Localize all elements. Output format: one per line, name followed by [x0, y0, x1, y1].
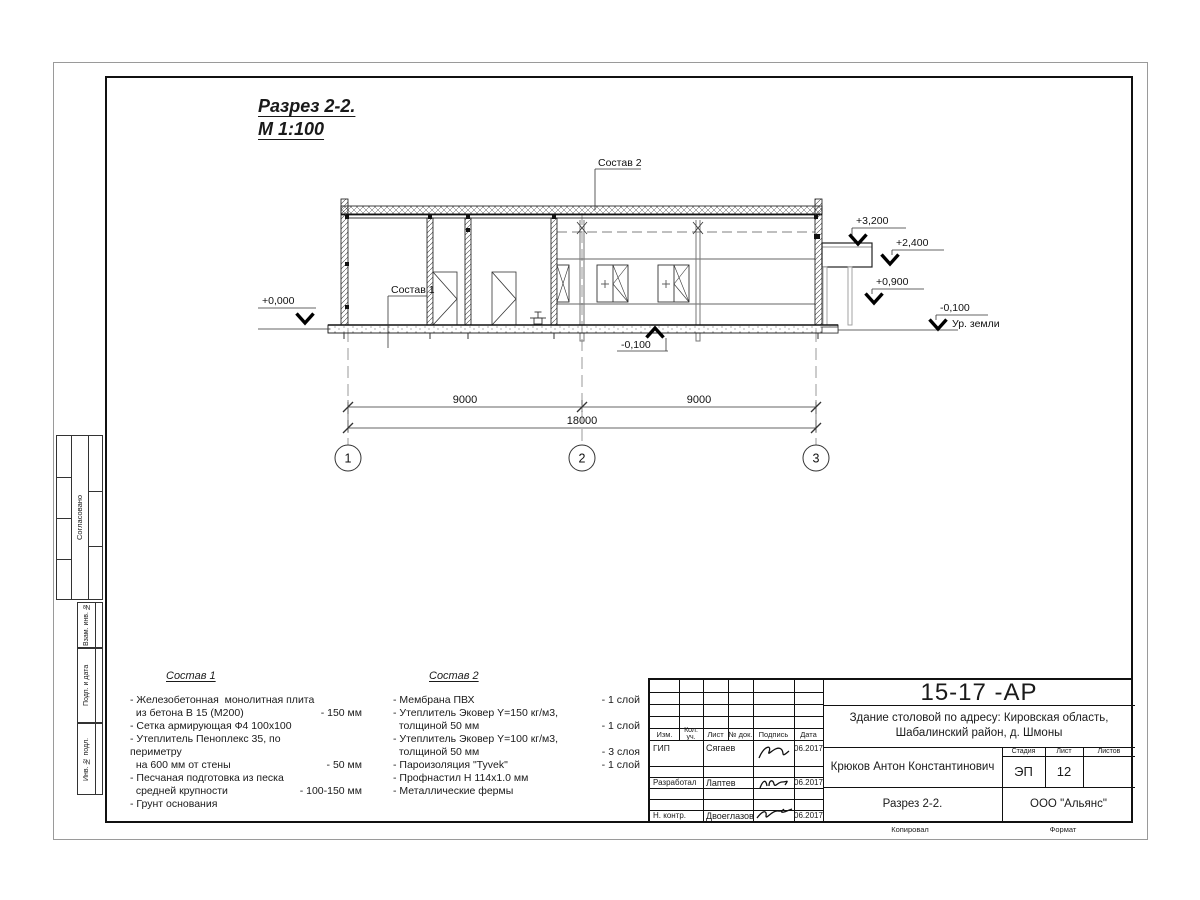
footer-format: Формат [1028, 825, 1098, 834]
sink-icon [530, 312, 546, 324]
axis-bubble-2: 2 [579, 452, 586, 466]
list-item: - Утеплитель Эковер Y=100 кг/м3, толщино… [393, 733, 640, 759]
title-block: Изм. Кол. уч. Лист № док. Подпись Дата Г… [648, 678, 1133, 823]
elev-m0100-right-label: -0,100 [940, 302, 970, 314]
project-name: Здание столовой по адресу: Кировская обл… [823, 705, 1135, 747]
margin-cell-inv: Инв. № подл. [77, 723, 103, 795]
dim-total: 18000 [567, 415, 598, 427]
col-sign: Подпись [753, 728, 794, 740]
list-item: - Сетка армирующая Ф4 100х100 [130, 720, 362, 733]
materials-list-1: Состав 1 - Железобетонная монолитная пли… [130, 670, 362, 811]
row-dev-role: Разработал [650, 777, 703, 788]
approval-block: Согласовано [56, 435, 103, 600]
list-item: - Грунт основания [130, 798, 362, 811]
margin-label-vzam: Взам. инв. № [78, 603, 95, 647]
elev-m0100-bottom-label: -0,100 [621, 339, 651, 351]
materials2-title: Состав 2 [429, 670, 640, 683]
roof-slab [341, 206, 822, 215]
signature-gip [756, 740, 792, 766]
margin-label-inv: Инв. № подл. [78, 724, 95, 794]
list-item: - Утеплитель Пеноплекс 35, по периметру … [130, 733, 362, 772]
dim-span2: 9000 [687, 394, 711, 406]
list-item: - Железобетонная монолитная плита из бет… [130, 694, 362, 720]
list-item: - Пароизоляция "Tyvek"- 1 слой [393, 759, 640, 772]
row-gip-name: Сягаев [703, 740, 753, 756]
ground-level-label: Ур. земли [952, 318, 1000, 330]
margin-cell-vzam: Взам. инв. № [77, 602, 103, 648]
row-gip-date: 06.2017 [794, 740, 823, 756]
axis-bubble-3: 3 [813, 452, 820, 466]
list-item: - Металлические фермы [393, 785, 640, 798]
callout-sostav2-label: Состав 2 [598, 157, 642, 169]
stage-value: ЭП [1002, 756, 1045, 787]
row-norm-role: Н. контр. [650, 810, 703, 821]
col-doc: № док. [728, 728, 753, 740]
list-item: - Утеплитель Эковер Y=150 кг/м3, толщино… [393, 707, 640, 733]
project-name-line1: Здание столовой по адресу: Кировская обл… [850, 711, 1109, 726]
materials1-title: Состав 1 [166, 670, 362, 683]
doc-number: 15-17 -АР [823, 680, 1135, 705]
signature-developer [756, 772, 792, 794]
margin-label-podp: Подп. и дата [78, 649, 95, 722]
list-item: - Профнастил Н 114х1.0 мм [393, 772, 640, 785]
elev-2400: +2,400 [882, 237, 945, 264]
dim-span1: 9000 [453, 394, 477, 406]
sheets-label: Листов [1083, 747, 1135, 756]
canopy [822, 243, 872, 325]
building-section-drawing: Состав 2 Состав 1 +0,000 +3,200 [140, 70, 1060, 500]
list-item: - Песчаная подготовка из песка средней к… [130, 772, 362, 798]
materials-list-2: Состав 2 - Мембрана ПВХ- 1 слой - Утепли… [393, 670, 640, 798]
footer-copied: Копировал [870, 825, 950, 834]
drawing-name: Разрез 2-2. [823, 787, 1002, 821]
sheet-label: Лист [1045, 747, 1083, 756]
margin-cell-podp: Подп. и дата [77, 648, 103, 723]
col-kol: Кол. уч. [679, 728, 703, 740]
row-dev-date: 06.2017 [794, 777, 823, 788]
project-name-line2: Шабалинский район, д. Шмоны [896, 726, 1063, 741]
row-norm-name: Двоеглазов [703, 810, 753, 821]
window-symbols [557, 265, 689, 302]
col-izm: Изм. [650, 728, 679, 740]
approval-block-label: Согласовано [71, 436, 88, 599]
callout-sostav2: Состав 2 [595, 157, 642, 210]
chief-name: Крюков Антон Константинович [823, 747, 1002, 787]
company-name: ООО "Альянс" [1002, 787, 1135, 821]
elev-0000: +0,000 [258, 295, 316, 323]
door-symbols [433, 272, 516, 325]
row-gip-role: ГИП [650, 740, 703, 756]
elev-0900: +0,900 [866, 276, 925, 303]
grid-bubbles: 1 2 3 [335, 445, 829, 471]
row-dev-name: Лаптев [703, 777, 753, 788]
elev-2400-label: +2,400 [896, 237, 929, 249]
list-item: - Мембрана ПВХ- 1 слой [393, 694, 640, 707]
signature-normcontrol [754, 802, 794, 824]
col-list: Лист [703, 728, 728, 740]
elev-0900-label: +0,900 [876, 276, 909, 288]
floor-slab [258, 325, 958, 339]
stage-label: Стадия [1002, 747, 1045, 756]
callout-sostav1-label: Состав 1 [391, 284, 435, 296]
row-norm-date: 06.2017 [794, 810, 823, 821]
col-date: Дата [794, 728, 823, 740]
sheet-value: 12 [1045, 756, 1083, 787]
elev-3200-label: +3,200 [856, 215, 889, 227]
drawing-sheet: Разрез 2-2. М 1:100 [0, 0, 1200, 900]
axis-bubble-1: 1 [345, 452, 352, 466]
elev-m0100-right: -0,100 Ур. земли [930, 302, 1000, 330]
elev-0000-label: +0,000 [262, 295, 295, 307]
